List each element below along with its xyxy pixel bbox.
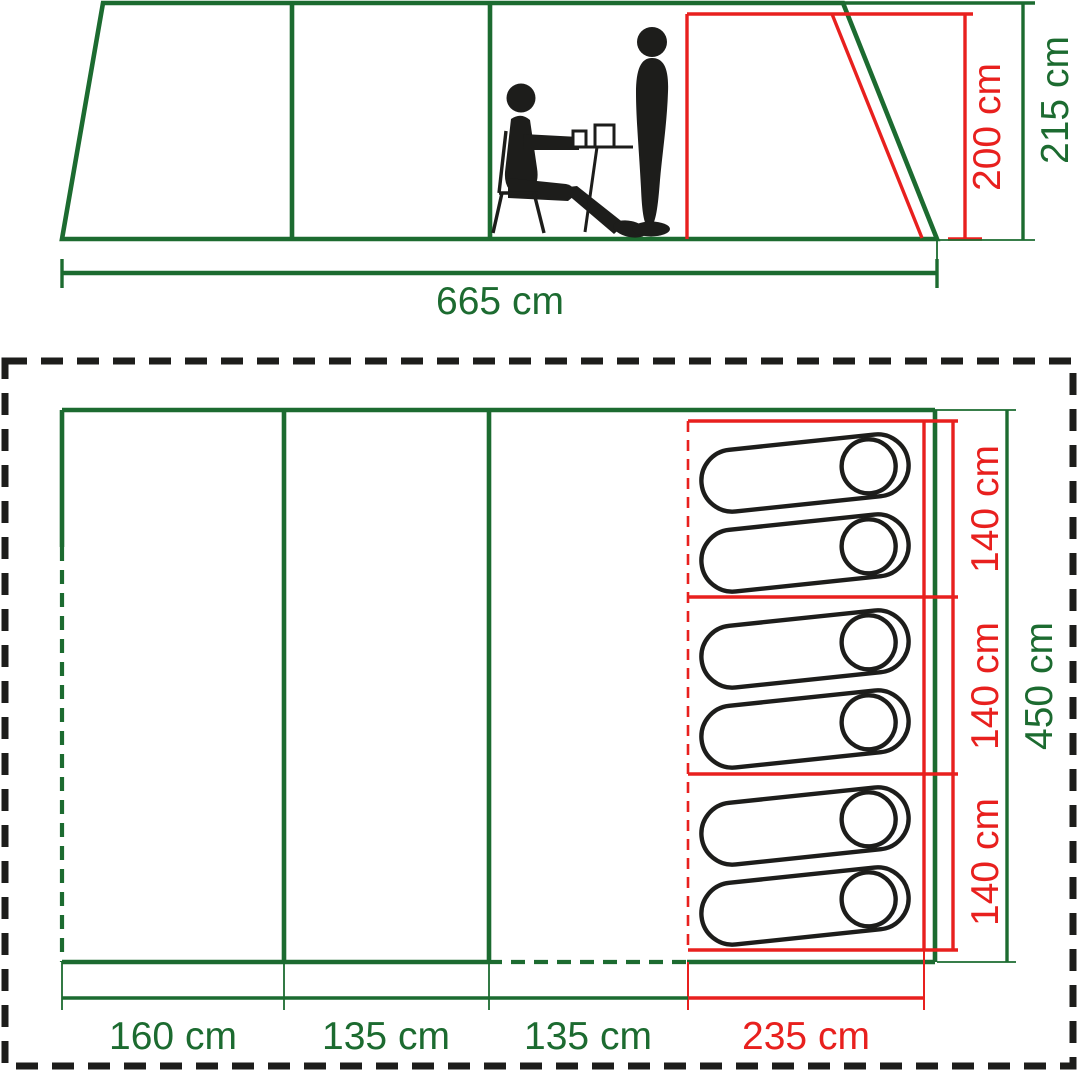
sleeping-bag-icon: [698, 687, 911, 770]
sleeping-bag-icon: [698, 784, 911, 867]
dim-135a-label: 135 cm: [322, 1015, 450, 1058]
dim-140-label-3: 140 cm: [964, 798, 1007, 926]
dim-140-label-1: 140 cm: [964, 445, 1007, 573]
carton-icon: [595, 125, 614, 147]
side-view: 200 cm 215 cm 665 cm: [62, 3, 1077, 323]
sleeping-bag-icon: [698, 864, 911, 947]
dim-135b-label: 135 cm: [524, 1015, 652, 1058]
floor-plan: 140 cm 140 cm 140 cm 450 cm 160 cm 135 c…: [5, 361, 1073, 1066]
dim-215-label: 215 cm: [1034, 36, 1077, 164]
diagram-svg: 200 cm 215 cm 665 cm: [0, 0, 1078, 1071]
seated-person-icon: [505, 84, 648, 241]
dim-235-label: 235 cm: [742, 1015, 870, 1058]
dim-160-label: 160 cm: [109, 1015, 237, 1058]
cup-icon: [573, 131, 586, 147]
sleeping-bag-icon: [698, 511, 911, 594]
dim-140-label-2: 140 cm: [964, 622, 1007, 750]
sleeping-bag-icon: [698, 607, 911, 690]
dim-665-label: 665 cm: [436, 280, 564, 323]
standing-person-icon: [632, 27, 670, 237]
dim-200-label: 200 cm: [966, 63, 1009, 191]
tent-dimension-diagram: 200 cm 215 cm 665 cm: [0, 0, 1078, 1071]
dim-450-label: 450 cm: [1018, 622, 1061, 750]
sleeping-bags: [698, 431, 911, 947]
sleeping-bag-icon: [698, 431, 911, 514]
cabin-rear-slant: [832, 14, 922, 238]
